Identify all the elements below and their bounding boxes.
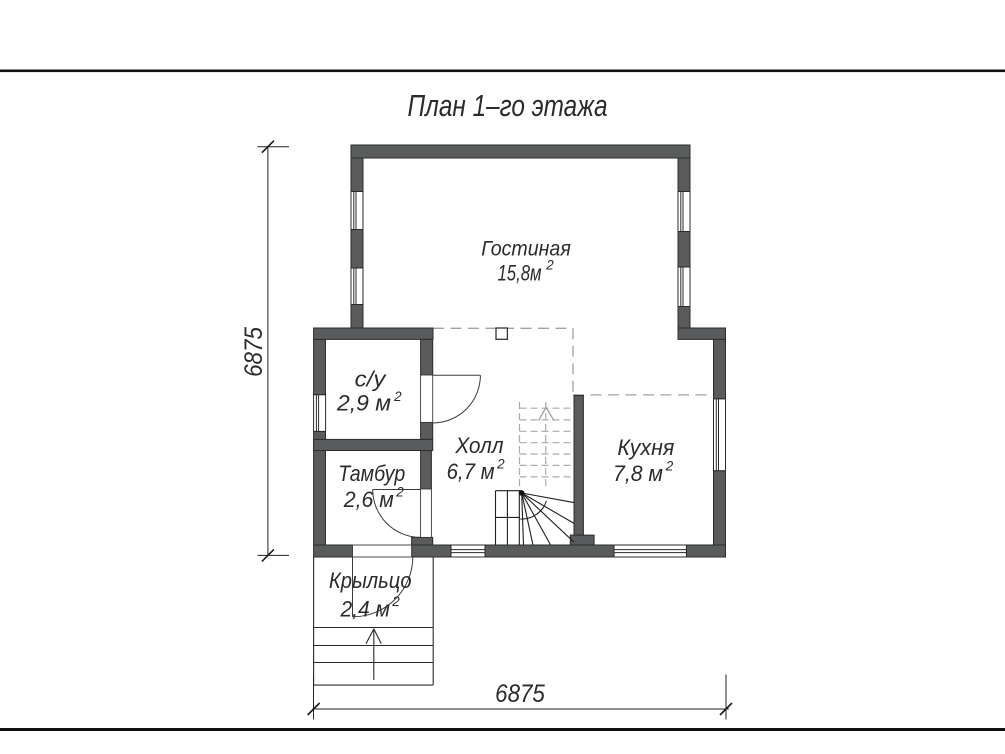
svg-text:2: 2 <box>393 389 402 404</box>
svg-text:2: 2 <box>391 594 400 609</box>
svg-text:6,7 м: 6,7 м <box>447 459 495 484</box>
svg-text:с/у: с/у <box>355 367 388 392</box>
svg-text:2: 2 <box>665 459 674 474</box>
svg-text:15,8м: 15,8м <box>497 261 541 286</box>
svg-text:2,9 м: 2,9 м <box>336 391 391 416</box>
svg-text:2: 2 <box>395 485 404 500</box>
svg-text:Холл: Холл <box>454 433 503 458</box>
svg-text:2: 2 <box>545 257 554 272</box>
svg-text:2,4 м: 2,4 м <box>339 597 389 622</box>
svg-text:Тамбур: Тамбур <box>338 461 405 486</box>
svg-text:2: 2 <box>496 457 505 472</box>
svg-text:6875: 6875 <box>495 680 546 708</box>
svg-text:Крыльцо: Крыльцо <box>329 568 412 593</box>
svg-text:7,8 м: 7,8 м <box>613 461 663 486</box>
svg-text:2,6 м: 2,6 м <box>343 487 394 512</box>
svg-text:Гостиная: Гостиная <box>481 236 571 261</box>
svg-text:Кухня: Кухня <box>617 435 674 460</box>
svg-text:6875: 6875 <box>240 326 268 377</box>
svg-text:План 1–го этажа: План 1–го этажа <box>408 89 608 123</box>
